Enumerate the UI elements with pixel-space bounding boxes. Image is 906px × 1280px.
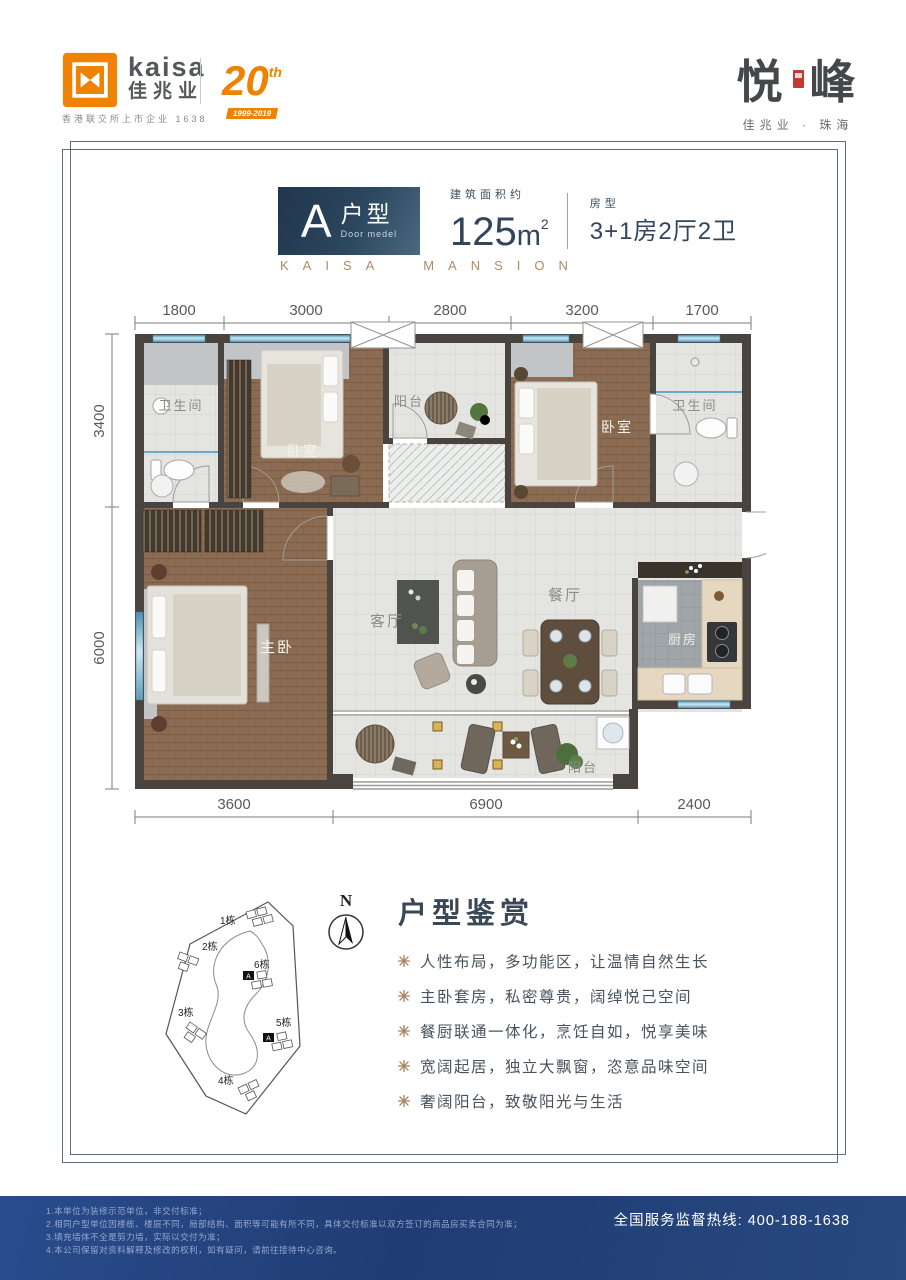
building-label-1: 1栋 [220, 914, 236, 927]
disclaimer-line: 1.本单位为装修示范单位，非交付标准； [46, 1205, 522, 1218]
dim-bottom-2: 6900 [469, 796, 502, 813]
service-hotline: 全国服务监督热线: 400-188-1638 [614, 1209, 850, 1230]
appreciation-bullet: 主卧套房，私密尊贵，阔绰悦己空间 [420, 985, 692, 1007]
room-label-kitchen: 厨房 [668, 632, 698, 647]
unit-a-marker-label: A [266, 1036, 271, 1043]
kaisa-latin-name: kaisa [128, 54, 206, 80]
footer-bar: 1.本单位为装修示范单位，非交付标准； 2.相同户型单位因楼栋、楼层不同，局部结… [0, 1196, 906, 1280]
asterisk-bullet-icon [398, 1060, 410, 1072]
anniversary-years: 1999-2019 [226, 108, 279, 119]
room-type-value: 3+1房2厅2卫 [590, 217, 737, 247]
disclaimer-line: 3.填充墙体不全是剪力墙，实际以交付为准； [46, 1231, 522, 1244]
dim-bottom-3: 2400 [677, 796, 710, 813]
site-plan: N A A 1栋 2栋 3栋 4栋 5栋 [150, 886, 395, 1123]
room-label-bed1: 卧室 [287, 443, 319, 459]
list-item: 宽阔起居，独立大飘窗，恣意品味空间 [398, 1055, 818, 1077]
building-label-6: 6栋 [254, 958, 270, 971]
asterisk-bullet-icon [398, 1025, 410, 1037]
kaisa-logo-icon [62, 52, 118, 108]
room-label-balcony-top: 阳台 [394, 394, 424, 409]
room-label-dining: 餐厅 [548, 587, 582, 604]
compass: N [329, 891, 363, 949]
project-name-right: 峰 [810, 46, 860, 112]
project-subtitle: 佳兆业 · 珠海 [708, 116, 888, 133]
kaisa-tagline: 香港联交所上市企业 1638 [62, 112, 208, 125]
room-label-living: 客厅 [370, 613, 404, 630]
unit-type-box: A 户型 Door medel [278, 187, 420, 255]
area-value: 125m2 [450, 204, 549, 256]
appreciation-heading: 户型鉴赏 [398, 890, 818, 932]
hotline-number: 400-188-1638 [748, 1213, 850, 1229]
area-exponent: 2 [541, 216, 549, 232]
poster-page: kaisa 佳兆业 香港联交所上市企业 1638 20th 1999-2019 … [0, 0, 906, 1280]
list-item: 餐厨联通一体化，烹饪自如，悦享美味 [398, 1020, 818, 1042]
hotline-label: 全国服务监督热线: [614, 1213, 743, 1229]
dim-top-2: 3000 [289, 302, 322, 319]
appreciation-bullet: 宽阔起居，独立大飘窗，恣意品味空间 [420, 1055, 709, 1077]
building-label-4: 4栋 [218, 1074, 234, 1087]
dim-left-2: 6000 [91, 631, 108, 664]
disclaimer-line: 4.本公司保留对资料解释及修改的权利，如有疑问，请前往接待中心咨询。 [46, 1244, 522, 1257]
dim-top-4: 3200 [565, 302, 598, 319]
header-divider [200, 58, 201, 104]
dim-top-3: 2800 [433, 302, 466, 319]
floor-plan: 1800 3000 2800 3200 1700 3400 6000 3600 … [86, 297, 766, 847]
room-type-block: 房型 3+1房2厅2卫 [590, 195, 737, 247]
area-block: 建筑面积约 125m2 [450, 186, 549, 256]
dim-top-5: 1700 [685, 302, 718, 319]
compass-n-label: N [340, 891, 353, 910]
room-label-bath2: 卫生间 [672, 398, 717, 413]
kaisa-logo: kaisa 佳兆业 [62, 52, 206, 108]
room-label-master: 主卧 [260, 639, 294, 656]
room-label-bath1: 卫生间 [158, 398, 203, 413]
unit-letter: A [301, 198, 332, 244]
list-item: 主卧套房，私密尊贵，阔绰悦己空间 [398, 985, 818, 1007]
appreciation-bullet: 奢阔阳台，致敬阳光与生活 [420, 1090, 624, 1112]
asterisk-bullet-icon [398, 990, 410, 1002]
room-label-bed2: 卧室 [601, 419, 633, 435]
building-label-5: 5栋 [276, 1016, 292, 1029]
project-name-left: 悦 [737, 46, 787, 112]
flue-shaft-icon [583, 322, 643, 348]
entry-door-arc [746, 512, 766, 558]
appreciation-list: 人性布局，多功能区，让温情自然生长 主卧套房，私密尊贵，阔绰悦己空间 餐厨联通一… [398, 950, 818, 1112]
area-label: 建筑面积约 [450, 186, 549, 202]
building-clusters [175, 906, 293, 1103]
dim-top-1: 1800 [162, 302, 195, 319]
appreciation-section: 户型鉴赏 人性布局，多功能区，让温情自然生长 主卧套房，私密尊贵，阔绰悦己空间 … [398, 890, 818, 1125]
brand-caption: KAISA MANSION [280, 258, 582, 273]
room-label-balcony-bottom: 阳台 [568, 760, 598, 775]
title-block: A 户型 Door medel 建筑面积约 125m2 房型 3+1房2厅2卫 [278, 186, 737, 256]
unit-label-en: Door medel [341, 230, 398, 239]
anniversary-badge: 20th 1999-2019 [212, 50, 292, 121]
dim-left-1: 3400 [91, 404, 108, 437]
unit-label-cn: 户型 [341, 203, 398, 226]
disclaimer-notes: 1.本单位为装修示范单位，非交付标准； 2.相同户型单位因楼栋、楼层不同，局部结… [46, 1205, 522, 1257]
title-divider [567, 193, 568, 249]
flue-shaft-icon [351, 322, 415, 348]
room-type-label: 房型 [590, 195, 737, 211]
balcony-railing [353, 782, 613, 789]
appreciation-bullet: 人性布局，多功能区，让温情自然生长 [420, 950, 709, 972]
anniversary-number: 20th [222, 57, 282, 104]
building-label-3: 3栋 [178, 1006, 194, 1019]
asterisk-bullet-icon [398, 1095, 410, 1107]
project-name: 悦 峰 [708, 46, 888, 112]
building-labels: 1栋 2栋 3栋 4栋 5栋 6栋 [178, 914, 292, 1087]
unit-a-marker-label: A [246, 974, 251, 981]
dim-bottom-1: 3600 [217, 796, 250, 813]
kaisa-cn-name: 佳兆业 [128, 80, 206, 104]
red-seal-icon [793, 70, 804, 88]
disclaimer-line: 2.相同户型单位因楼栋、楼层不同，局部结构、面积等可能有所不同，具体交付标准以双… [46, 1218, 522, 1231]
asterisk-bullet-icon [398, 955, 410, 967]
appreciation-bullet: 餐厨联通一体化，烹饪自如，悦享美味 [420, 1020, 709, 1042]
anniversary-suffix: th [269, 64, 282, 80]
list-item: 人性布局，多功能区，让温情自然生长 [398, 950, 818, 972]
building-label-2: 2栋 [202, 940, 218, 953]
project-logo: 悦 峰 佳兆业 · 珠海 [708, 46, 888, 133]
list-item: 奢阔阳台，致敬阳光与生活 [398, 1090, 818, 1112]
